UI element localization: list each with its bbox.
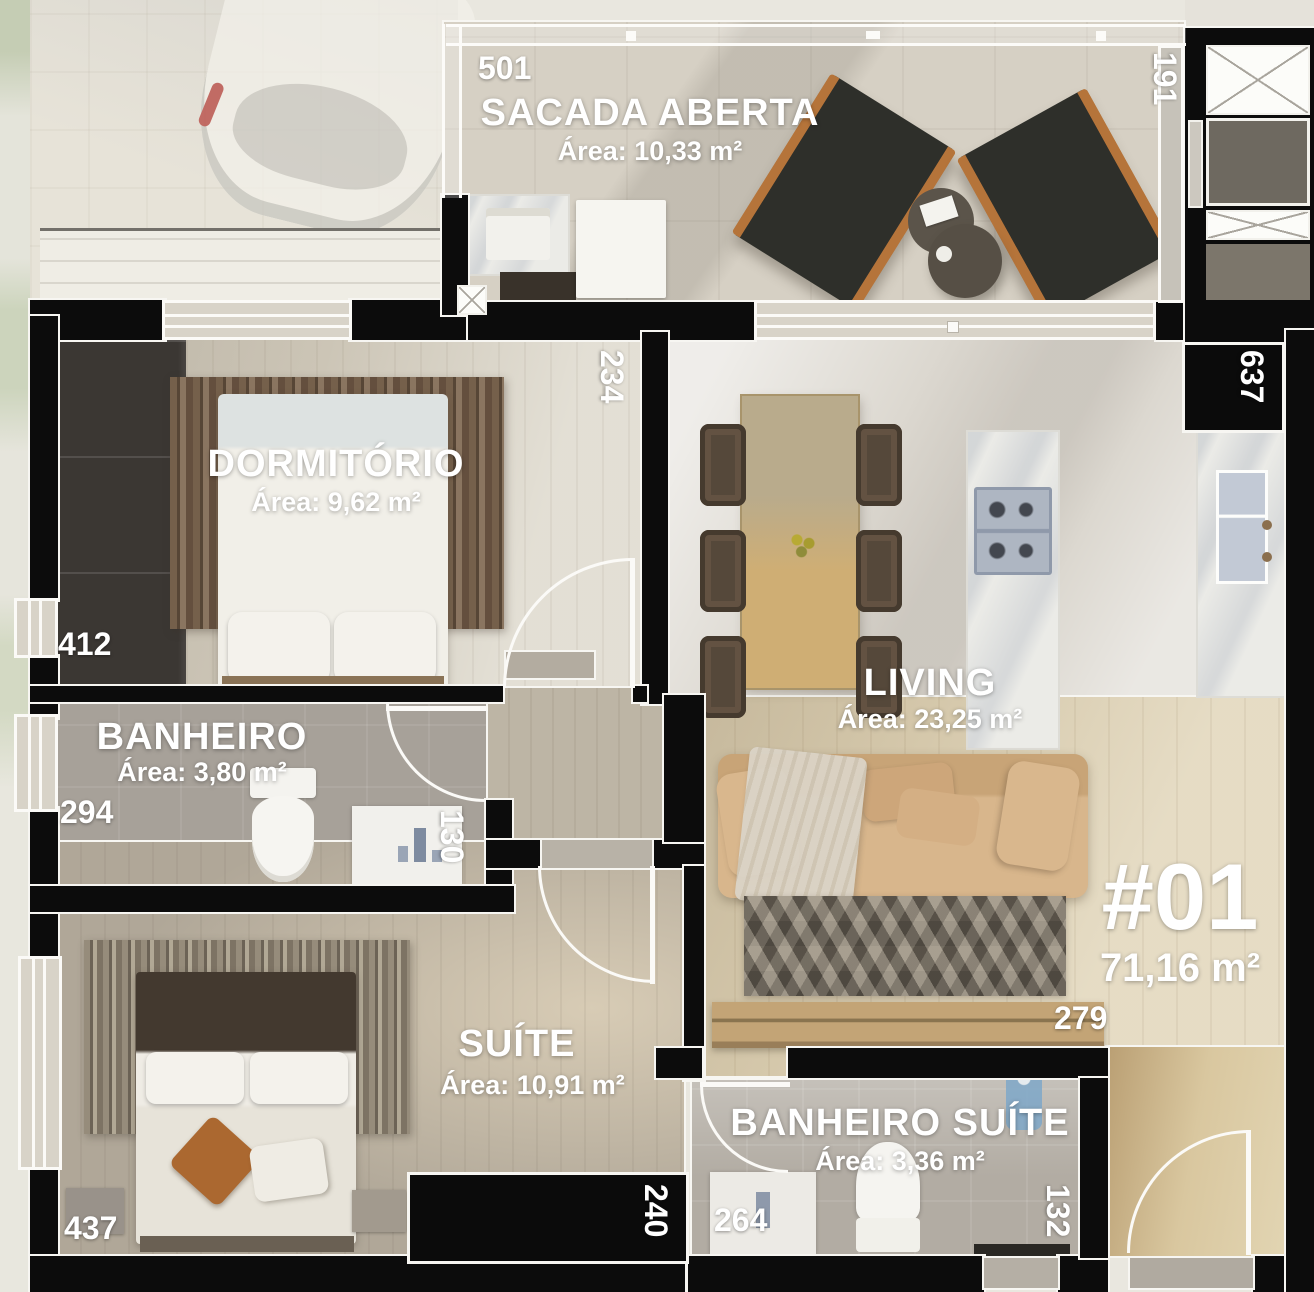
wall	[30, 1256, 685, 1292]
dormitorio-side-window	[14, 598, 58, 658]
dim-suite-depth: 240	[637, 1184, 674, 1237]
dim-living-width: 279	[1054, 1000, 1107, 1037]
wall	[30, 686, 503, 702]
suite-nightstand-right	[352, 1190, 406, 1232]
dim-sacada-depth: 191	[1146, 52, 1183, 105]
table-centerpiece	[788, 528, 818, 562]
room-area-banheiro: Área: 3,80 m²	[62, 757, 342, 788]
railing-post	[1096, 31, 1106, 41]
unit-area: 71,16 m²	[1090, 946, 1270, 991]
vanity-sink-mark	[398, 846, 408, 862]
suite-door-threshold	[542, 840, 654, 868]
room-label-sacada: SACADA ABERTA	[460, 92, 840, 135]
dim-sacada-width: 501	[478, 50, 531, 87]
counter-faucet	[1262, 552, 1272, 562]
banheiro-suite-door-leaf	[700, 1082, 790, 1087]
dim-banheiro-width: 294	[60, 794, 113, 831]
living-rug	[744, 896, 1066, 996]
dim-banheiro-suite-depth: 132	[1039, 1184, 1076, 1237]
cooktop	[974, 487, 1052, 575]
cup	[936, 246, 952, 262]
wall	[788, 1048, 1108, 1078]
suite-window	[18, 956, 62, 1170]
outside-top-right	[1185, 0, 1314, 30]
suite-pillow	[146, 1052, 244, 1104]
dining-chair	[856, 424, 902, 506]
sofa-blanket	[734, 746, 867, 911]
wall	[688, 1256, 984, 1292]
wall	[656, 1048, 702, 1078]
dining-chair	[700, 424, 746, 506]
door-handle	[947, 321, 959, 333]
dorm-pillow-left	[228, 612, 330, 684]
wall	[30, 808, 58, 960]
suite-toilet-tank	[856, 1218, 920, 1252]
dining-chair	[700, 636, 746, 718]
washing-machine	[576, 200, 666, 298]
suite-pillow	[250, 1052, 348, 1104]
shaft-equipment	[1206, 118, 1310, 206]
dormitorio-window	[162, 300, 352, 340]
room-label-banheiro-suite: BANHEIRO SUÍTE	[725, 1102, 1075, 1145]
balcony-railing-left	[442, 24, 462, 198]
dim-living-depth: 637	[1233, 350, 1270, 403]
window-mullion	[28, 601, 31, 655]
toilet-bowl	[252, 796, 314, 882]
window-mullion	[165, 325, 349, 328]
room-label-banheiro: BANHEIRO	[62, 716, 342, 759]
window-mullion	[757, 314, 1153, 317]
dim-dormitorio-width: 412	[58, 626, 111, 663]
dim-banheiro-depth: 130	[433, 810, 470, 863]
window-mullion	[32, 959, 35, 1167]
dining-chair	[700, 530, 746, 612]
room-area-dormitorio: Área: 9,62 m²	[186, 487, 486, 518]
wall	[468, 302, 755, 340]
garage-door	[40, 228, 458, 304]
column	[457, 285, 487, 315]
room-area-sacada: Área: 10,33 m²	[460, 136, 840, 167]
wall	[1286, 330, 1314, 1292]
dim-suite-width: 437	[64, 1210, 117, 1247]
dorm-pillow-right	[334, 612, 436, 684]
wall	[30, 886, 514, 912]
wall	[633, 686, 647, 702]
entry-threshold	[1130, 1258, 1253, 1288]
room-label-living: LIVING	[800, 662, 1060, 705]
entry-door-leaf	[1246, 1130, 1251, 1255]
window-mullion	[28, 717, 31, 809]
banheiro-door-leaf	[386, 706, 488, 711]
floor-plan: SACADA ABERTA Área: 10,33 m² DORMITÓRIO …	[0, 0, 1314, 1292]
wall	[30, 316, 58, 600]
unit-number: #01	[1090, 850, 1270, 944]
room-area-suite: Área: 10,91 m²	[420, 1070, 645, 1101]
window-mullion	[43, 959, 46, 1167]
shaft-door-strip	[1188, 120, 1203, 208]
wall	[654, 840, 704, 868]
suite-bed	[136, 972, 356, 1244]
suite-door-leaf	[650, 866, 655, 984]
shaft-shelf	[1206, 244, 1310, 300]
laundry-sink	[468, 196, 568, 274]
side-table-large	[928, 224, 1002, 298]
dim-banheiro-suite-width: 264	[714, 1202, 767, 1239]
vanity-sink-mark	[414, 828, 426, 862]
washer-mat	[500, 272, 576, 306]
room-label-suite: SUÍTE	[407, 1023, 627, 1066]
window-mullion	[39, 717, 42, 809]
wall	[1080, 1078, 1108, 1258]
room-label-dormitorio: DORMITÓRIO	[186, 443, 486, 486]
dormitorio-door-leaf	[630, 558, 635, 688]
suite-bed-bench	[140, 1236, 354, 1252]
banheiro-window	[14, 714, 58, 812]
shaft-duct	[1206, 45, 1310, 115]
room-area-banheiro-suite: Área: 3,36 m²	[725, 1146, 1075, 1177]
dining-chair	[856, 530, 902, 612]
throw-pillow-white	[248, 1137, 329, 1203]
sink-basin	[486, 208, 550, 260]
banheiro-suite-step	[984, 1258, 1058, 1288]
railing-post	[626, 31, 636, 41]
railing-post	[866, 31, 880, 39]
dim-dormitorio-depth: 234	[593, 350, 630, 403]
counter-sink	[1216, 470, 1268, 584]
sliding-door	[754, 300, 1156, 340]
shaft-duct-small	[1206, 210, 1310, 240]
balcony-railing-top	[446, 24, 1186, 46]
wall	[486, 840, 542, 868]
wall	[664, 695, 704, 842]
window-mullion	[165, 314, 349, 317]
counter-faucet	[1262, 520, 1272, 530]
tv-console	[712, 1002, 1104, 1048]
window-mullion	[39, 601, 42, 655]
shower-mat	[974, 1244, 1070, 1258]
wall	[1058, 1256, 1108, 1292]
room-area-living: Área: 23,25 m²	[800, 704, 1060, 735]
wall	[642, 332, 668, 704]
